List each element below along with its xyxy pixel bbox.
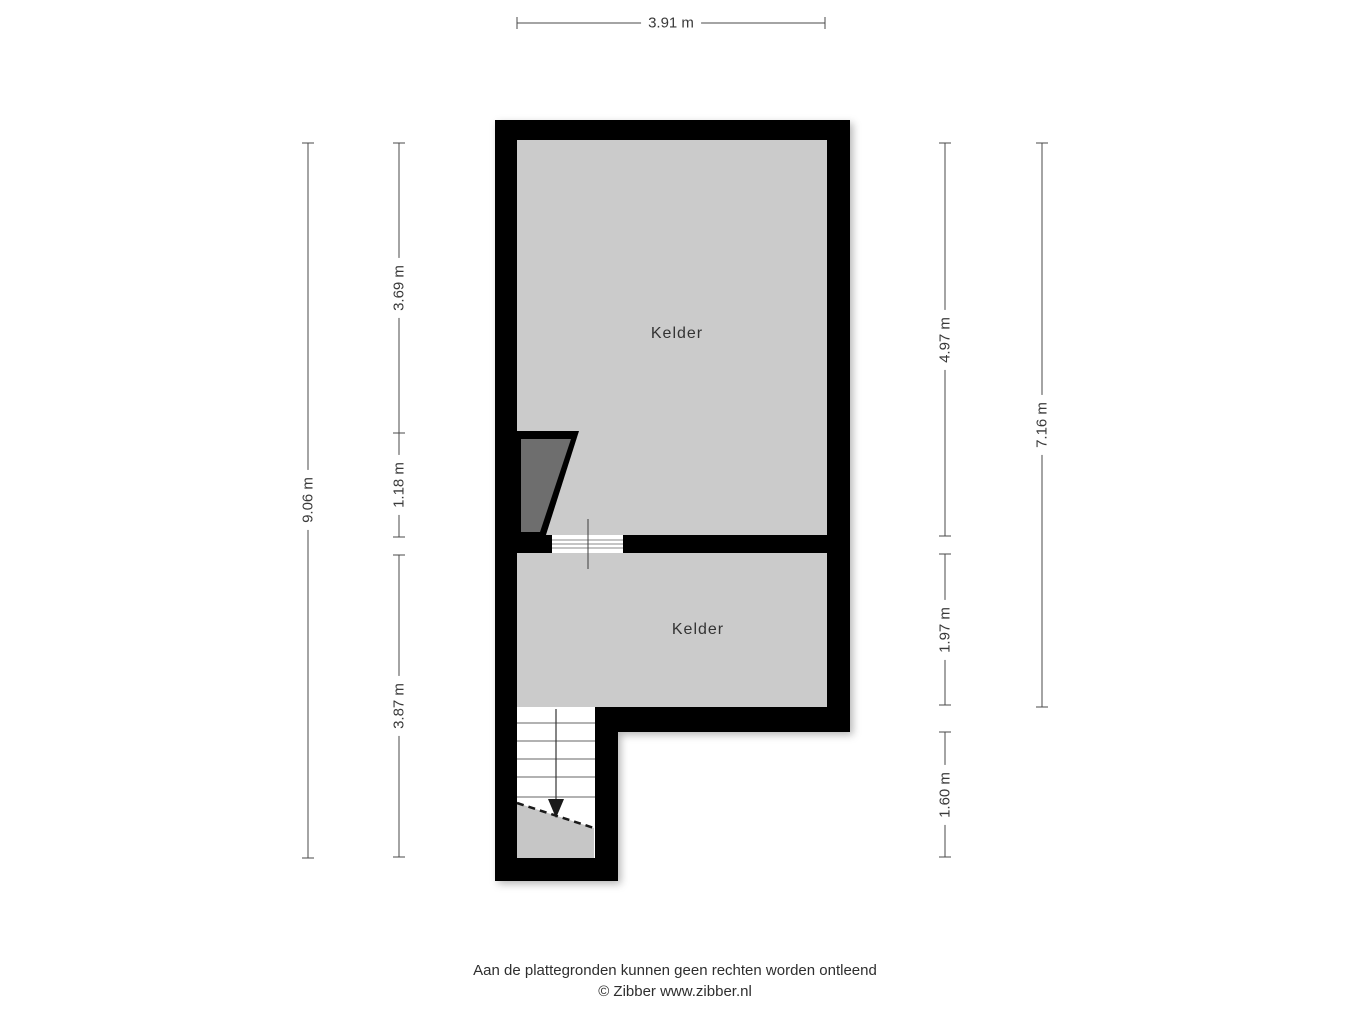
footer-disclaimer: Aan de plattegronden kunnen geen rechten… <box>0 960 1350 1002</box>
footer-line1: Aan de plattegronden kunnen geen rechten… <box>0 960 1350 981</box>
dim-left-inner-3: 3.87 m <box>390 676 409 736</box>
dim-right-inner-1: 4.97 m <box>936 310 955 370</box>
dim-left-inner-1: 3.69 m <box>390 258 409 318</box>
dim-right-inner-2: 1.97 m <box>936 600 955 660</box>
dim-top-width: 3.91 m <box>641 14 701 33</box>
room-label-lower-kelder: Kelder <box>672 621 724 639</box>
floorplan-drawing <box>0 0 1350 1013</box>
dim-left-inner-2: 1.18 m <box>390 455 409 515</box>
dim-left-outer: 9.06 m <box>299 470 318 530</box>
dim-right-outer: 7.16 m <box>1033 395 1052 455</box>
room-label-upper-kelder: Kelder <box>651 325 703 343</box>
floorplan-page: Kelder Kelder 3.91 m 9.06 m 3.69 m 1.18 … <box>0 0 1350 1013</box>
footer-line2: © Zibber www.zibber.nl <box>0 981 1350 1002</box>
dim-right-inner-3: 1.60 m <box>936 765 955 825</box>
